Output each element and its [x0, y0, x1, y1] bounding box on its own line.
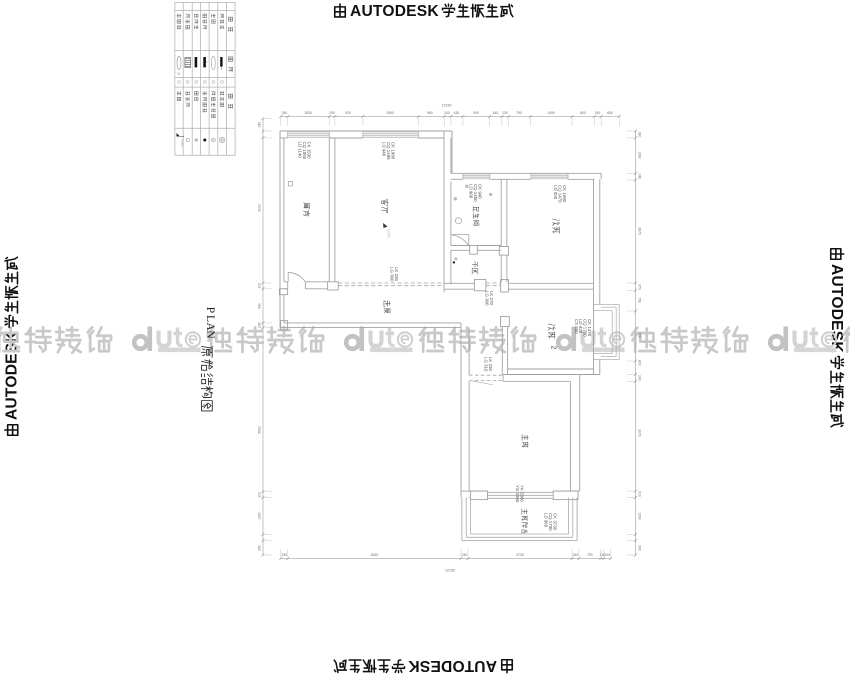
svg-text:CK 1680: CK 1680 — [562, 185, 567, 203]
svg-text:LD 1140: LD 1140 — [298, 142, 303, 159]
svg-text:240: 240 — [281, 553, 287, 557]
svg-text:LK 270: LK 270 — [489, 291, 494, 305]
svg-text:3730: 3730 — [516, 553, 524, 557]
svg-text:CK 1530: CK 1530 — [306, 142, 311, 160]
svg-text:3670: 3670 — [638, 227, 642, 235]
svg-text:#2250: #2250 — [387, 229, 391, 239]
svg-text:LG 360: LG 360 — [390, 267, 395, 282]
svg-text:920: 920 — [345, 111, 351, 115]
svg-text:LG 360: LG 360 — [485, 291, 490, 306]
svg-text:CQ 1060: CQ 1060 — [302, 142, 307, 160]
svg-text:L: L — [204, 315, 216, 322]
svg-text:1260: 1260 — [258, 512, 262, 520]
svg-text:CK 3730: CK 3730 — [552, 513, 557, 531]
svg-text:940: 940 — [473, 111, 479, 115]
svg-text:940: 940 — [258, 303, 262, 309]
svg-text:430: 430 — [454, 111, 460, 115]
svg-text:1530: 1530 — [304, 111, 312, 115]
svg-text:YK 2360: YK 2360 — [519, 485, 524, 502]
svg-text:AUTODESK: AUTODESK — [350, 3, 439, 20]
svg-text:LD 900: LD 900 — [469, 184, 474, 199]
svg-text:1280: 1280 — [638, 151, 642, 159]
svg-text:12150: 12150 — [442, 104, 452, 108]
svg-text:800: 800 — [580, 111, 586, 115]
svg-text:240: 240 — [573, 553, 579, 557]
svg-text:650: 650 — [607, 111, 613, 115]
svg-text:790: 790 — [638, 298, 642, 304]
svg-text:LD 820: LD 820 — [578, 319, 583, 334]
svg-text:6260: 6260 — [371, 553, 379, 557]
svg-text:CQ 1790: CQ 1790 — [548, 513, 553, 531]
svg-text:2.850: 2.850 — [180, 139, 184, 147]
svg-text:800: 800 — [638, 360, 642, 366]
svg-text:CK 1470: CK 1470 — [587, 319, 592, 337]
svg-text:100: 100 — [638, 332, 642, 338]
svg-text:LG 310: LG 310 — [484, 357, 489, 372]
svg-text:CK 1980: CK 1980 — [390, 142, 395, 160]
svg-text:240: 240 — [258, 545, 262, 551]
svg-text:790: 790 — [587, 553, 593, 557]
svg-text:1490: 1490 — [547, 111, 555, 115]
svg-text:240: 240 — [638, 375, 642, 381]
svg-text:270: 270 — [638, 284, 642, 290]
svg-text:LD 960: LD 960 — [544, 513, 549, 528]
svg-text:3030: 3030 — [258, 204, 262, 212]
svg-text:1290: 1290 — [638, 512, 642, 520]
svg-text:240: 240 — [282, 111, 288, 115]
svg-text:b1: b1 — [177, 72, 181, 76]
svg-text:CQ 1470: CQ 1470 — [557, 185, 562, 203]
svg-text:200: 200 — [258, 283, 262, 289]
svg-text:200: 200 — [329, 111, 335, 115]
svg-text:N: N — [204, 330, 216, 339]
svg-text:5630: 5630 — [258, 426, 262, 434]
svg-text:240: 240 — [638, 132, 642, 138]
svg-text:240: 240 — [604, 553, 610, 557]
svg-text:LK 230: LK 230 — [488, 357, 493, 371]
svg-text:YG 2360: YG 2360 — [515, 485, 520, 503]
svg-text:CQ 1495: CQ 1495 — [386, 142, 391, 160]
svg-text:240: 240 — [638, 174, 642, 180]
svg-text:240: 240 — [258, 122, 262, 128]
svg-text:240: 240 — [638, 545, 642, 551]
svg-text:CS 650: CS 650 — [574, 319, 579, 334]
svg-text:LD 940: LD 940 — [382, 142, 387, 157]
svg-text:CK 940: CK 940 — [477, 184, 482, 199]
svg-text:LK 230: LK 230 — [394, 267, 399, 281]
svg-text:240: 240 — [258, 322, 262, 328]
svg-text:CQ 1780: CQ 1780 — [583, 319, 588, 337]
svg-text:240: 240 — [462, 553, 468, 557]
svg-text:230: 230 — [502, 111, 508, 115]
svg-text:P: P — [204, 307, 216, 313]
svg-text:AUTODESK: AUTODESK — [408, 657, 497, 674]
svg-text:240: 240 — [595, 111, 601, 115]
svg-text:440: 440 — [493, 111, 499, 115]
svg-text:1980: 1980 — [386, 111, 394, 115]
svg-text:960: 960 — [427, 111, 433, 115]
svg-text:200: 200 — [638, 491, 642, 497]
svg-text:2: 2 — [550, 346, 557, 350]
svg-text:LD 920: LD 920 — [553, 185, 558, 200]
svg-text:3070: 3070 — [638, 429, 642, 437]
svg-text:AUTODESK: AUTODESK — [4, 331, 21, 420]
svg-text:200: 200 — [258, 492, 262, 498]
svg-text:CQ 1450: CQ 1450 — [473, 184, 478, 202]
svg-text:790: 790 — [516, 111, 522, 115]
svg-text:12150: 12150 — [445, 569, 455, 573]
svg-text:240: 240 — [444, 111, 450, 115]
